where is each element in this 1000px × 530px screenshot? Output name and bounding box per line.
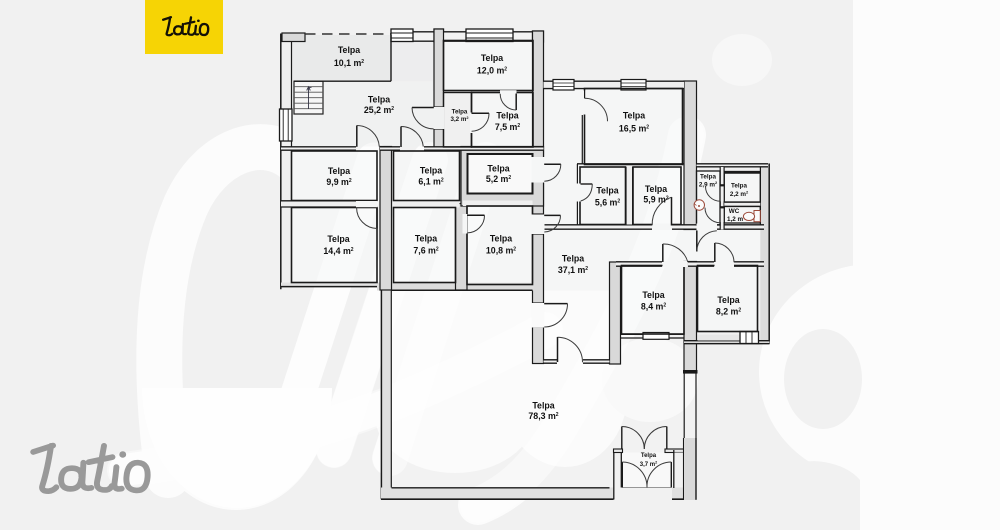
svg-text:6,1 m2: 6,1 m2 — [418, 177, 444, 187]
svg-text:Telpa: Telpa — [496, 111, 518, 121]
svg-text:WC: WC — [729, 208, 740, 215]
svg-text:78,3 m2: 78,3 m2 — [528, 411, 558, 421]
svg-text:Telpa: Telpa — [415, 234, 437, 244]
svg-text:7,6 m2: 7,6 m2 — [413, 246, 439, 256]
svg-text:37,1 m2: 37,1 m2 — [558, 265, 588, 275]
svg-text:12,0 m2: 12,0 m2 — [477, 66, 507, 76]
svg-text:Telpa: Telpa — [641, 453, 657, 459]
svg-text:10,8 m2: 10,8 m2 — [486, 246, 516, 256]
svg-text:Telpa: Telpa — [532, 401, 554, 411]
svg-text:8,2 m2: 8,2 m2 — [716, 307, 742, 317]
svg-text:Telpa: Telpa — [481, 53, 503, 63]
svg-text:14,4 m2: 14,4 m2 — [323, 246, 353, 256]
svg-text:25,2 m2: 25,2 m2 — [364, 105, 394, 115]
svg-text:Telpa: Telpa — [368, 95, 390, 105]
svg-text:Telpa: Telpa — [328, 166, 350, 176]
svg-text:8,4 m2: 8,4 m2 — [641, 302, 667, 312]
svg-text:Telpa: Telpa — [338, 45, 360, 55]
svg-text:Telpa: Telpa — [717, 295, 739, 305]
svg-text:Telpa: Telpa — [623, 111, 645, 121]
svg-text:10,1 m2: 10,1 m2 — [334, 58, 364, 68]
svg-text:5,2 m2: 5,2 m2 — [486, 174, 512, 184]
svg-text:Telpa: Telpa — [596, 186, 618, 196]
svg-text:1,2 m: 1,2 m — [727, 216, 744, 223]
svg-text:Telpa: Telpa — [731, 183, 747, 190]
svg-text:Telpa: Telpa — [327, 234, 349, 244]
svg-text:9,9 m2: 9,9 m2 — [326, 177, 352, 187]
svg-text:Telpa: Telpa — [642, 290, 664, 300]
svg-text:Telpa: Telpa — [645, 184, 667, 194]
svg-text:Telpa: Telpa — [420, 166, 442, 176]
svg-text:5,6 m2: 5,6 m2 — [595, 198, 621, 208]
svg-text:Telpa: Telpa — [487, 164, 509, 174]
svg-text:Telpa: Telpa — [490, 234, 512, 244]
svg-text:5,9 m2: 5,9 m2 — [643, 195, 669, 205]
svg-text:16,5 m2: 16,5 m2 — [619, 124, 649, 134]
svg-text:Telpa: Telpa — [562, 254, 584, 264]
svg-text:7,5 m2: 7,5 m2 — [495, 122, 521, 132]
svg-text:3,7 m2: 3,7 m2 — [640, 461, 657, 468]
